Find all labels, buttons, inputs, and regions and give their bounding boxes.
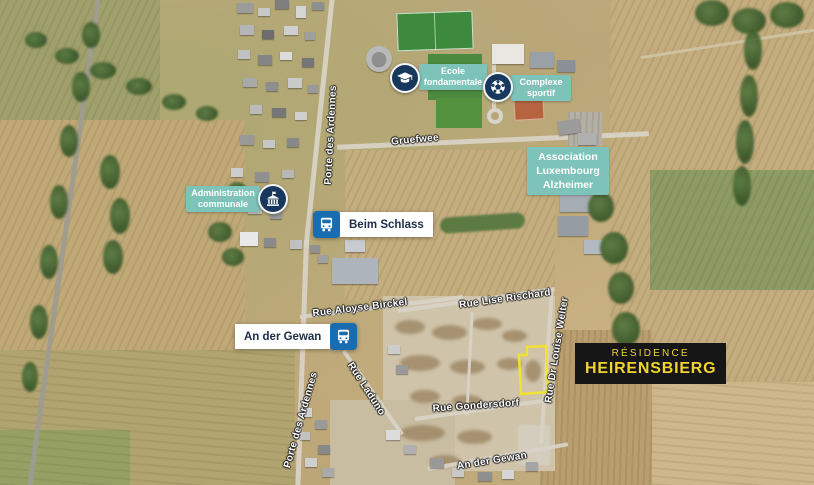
top-right-trees bbox=[732, 8, 766, 34]
residence-badge: RÉSIDENCE HEIRENSBIERG bbox=[575, 343, 726, 384]
east-trees bbox=[608, 272, 634, 304]
building bbox=[282, 170, 294, 178]
tree-row-railway bbox=[72, 72, 90, 102]
building bbox=[240, 135, 254, 145]
poi-label-administration: Administration communale bbox=[186, 186, 260, 212]
tree-cluster bbox=[55, 48, 79, 64]
building bbox=[578, 133, 596, 145]
field bbox=[0, 430, 130, 485]
field bbox=[650, 170, 814, 290]
building bbox=[280, 52, 292, 60]
house bbox=[386, 430, 400, 440]
residence-line1: RÉSIDENCE bbox=[585, 348, 716, 359]
building bbox=[272, 108, 286, 117]
satellite-map: Gruefwee Porte des Ardennes Rue Aloyse B… bbox=[0, 0, 814, 485]
football-pitch bbox=[396, 11, 473, 52]
round-building bbox=[372, 52, 386, 66]
building bbox=[231, 168, 243, 177]
building bbox=[255, 172, 269, 182]
house bbox=[305, 458, 317, 467]
building bbox=[345, 240, 365, 252]
bus-stop-an-der-gewan: An der Gewan bbox=[235, 323, 357, 350]
east-trees bbox=[588, 192, 614, 222]
building bbox=[262, 30, 274, 39]
roundabout bbox=[487, 108, 503, 124]
tree-cluster bbox=[162, 94, 186, 110]
bus-icon bbox=[330, 323, 357, 350]
tree-row-railway bbox=[22, 362, 38, 392]
dirt-patch bbox=[525, 360, 541, 382]
bus-stop-label: Beim Schlass bbox=[340, 212, 433, 237]
tree-row-railway bbox=[82, 22, 100, 48]
house bbox=[478, 472, 492, 481]
large-building-under-construction bbox=[332, 258, 378, 284]
tree-cluster bbox=[126, 78, 152, 95]
right-tree-line bbox=[736, 120, 754, 164]
soccer-ball-icon bbox=[489, 78, 507, 96]
stream-trees bbox=[100, 155, 120, 189]
building bbox=[237, 3, 253, 13]
tree-cluster bbox=[90, 62, 116, 79]
sports-marker bbox=[483, 72, 513, 102]
stream-trees bbox=[103, 240, 123, 274]
stream-trees bbox=[110, 198, 130, 234]
east-trees bbox=[600, 232, 628, 264]
building bbox=[305, 32, 315, 40]
church-building bbox=[240, 232, 258, 246]
village-trees bbox=[208, 222, 232, 242]
building bbox=[308, 85, 318, 93]
tree-row-railway bbox=[50, 185, 68, 219]
dirt-patch bbox=[410, 390, 440, 403]
dirt-patch bbox=[502, 330, 527, 342]
building bbox=[310, 245, 320, 253]
dirt-patch bbox=[472, 318, 502, 330]
building bbox=[258, 55, 272, 65]
building bbox=[284, 26, 298, 35]
school-marker bbox=[390, 63, 420, 93]
building bbox=[558, 216, 588, 236]
right-tree-line bbox=[733, 166, 751, 206]
dirt-patch bbox=[432, 325, 467, 340]
tree-row-railway bbox=[60, 125, 78, 157]
building bbox=[238, 50, 250, 59]
sports-field bbox=[436, 98, 482, 128]
house bbox=[526, 462, 538, 471]
house bbox=[396, 365, 408, 374]
building bbox=[258, 8, 270, 16]
poi-label-ecole: Ecole fondamentale bbox=[419, 64, 487, 90]
dirt-patch bbox=[497, 358, 522, 370]
top-right-trees bbox=[770, 2, 804, 28]
house bbox=[388, 345, 400, 354]
house bbox=[430, 458, 444, 468]
building bbox=[295, 112, 307, 120]
dirt-patch bbox=[395, 320, 425, 334]
building bbox=[243, 78, 257, 87]
building bbox=[557, 60, 575, 72]
sports-hall bbox=[492, 44, 524, 64]
tree-cluster bbox=[25, 32, 47, 48]
building bbox=[290, 240, 302, 249]
tree-row-railway bbox=[40, 245, 58, 279]
bus-stop-label: An der Gewan bbox=[235, 324, 330, 349]
building bbox=[250, 105, 262, 114]
village-trees bbox=[222, 248, 244, 266]
building bbox=[240, 25, 254, 35]
house bbox=[318, 445, 330, 454]
top-right-trees bbox=[695, 0, 729, 26]
building bbox=[275, 0, 289, 9]
tree-cluster bbox=[196, 106, 218, 121]
building bbox=[318, 255, 328, 263]
house bbox=[315, 420, 327, 429]
building bbox=[312, 2, 324, 10]
house bbox=[502, 470, 514, 479]
tree-row-railway bbox=[30, 305, 48, 339]
bus-icon bbox=[313, 211, 340, 238]
building bbox=[263, 140, 275, 148]
building bbox=[266, 82, 278, 91]
right-tree-line bbox=[744, 30, 762, 70]
east-trees bbox=[612, 312, 640, 346]
bus-stop-beim-schlass: Beim Schlass bbox=[313, 211, 433, 238]
residence-line2: HEIRENSBIERG bbox=[585, 360, 716, 378]
dirt-patch bbox=[400, 425, 445, 441]
house bbox=[404, 445, 416, 454]
town-hall-marker bbox=[258, 184, 288, 214]
graduation-cap-icon bbox=[396, 69, 414, 87]
building bbox=[302, 58, 314, 67]
house bbox=[322, 468, 334, 477]
building bbox=[287, 138, 299, 147]
street-label-porte-des-ardennes-north: Porte des Ardennes bbox=[323, 85, 339, 185]
poi-label-alzheimer: Association Luxembourg Alzheimer bbox=[527, 147, 609, 195]
building bbox=[530, 52, 554, 68]
building bbox=[288, 78, 302, 88]
town-hall-icon bbox=[264, 190, 282, 208]
building bbox=[296, 6, 306, 18]
poi-label-complexe: Complexe sportif bbox=[511, 75, 571, 101]
dirt-patch bbox=[457, 430, 492, 444]
right-tree-line bbox=[740, 75, 758, 117]
building bbox=[264, 238, 276, 247]
